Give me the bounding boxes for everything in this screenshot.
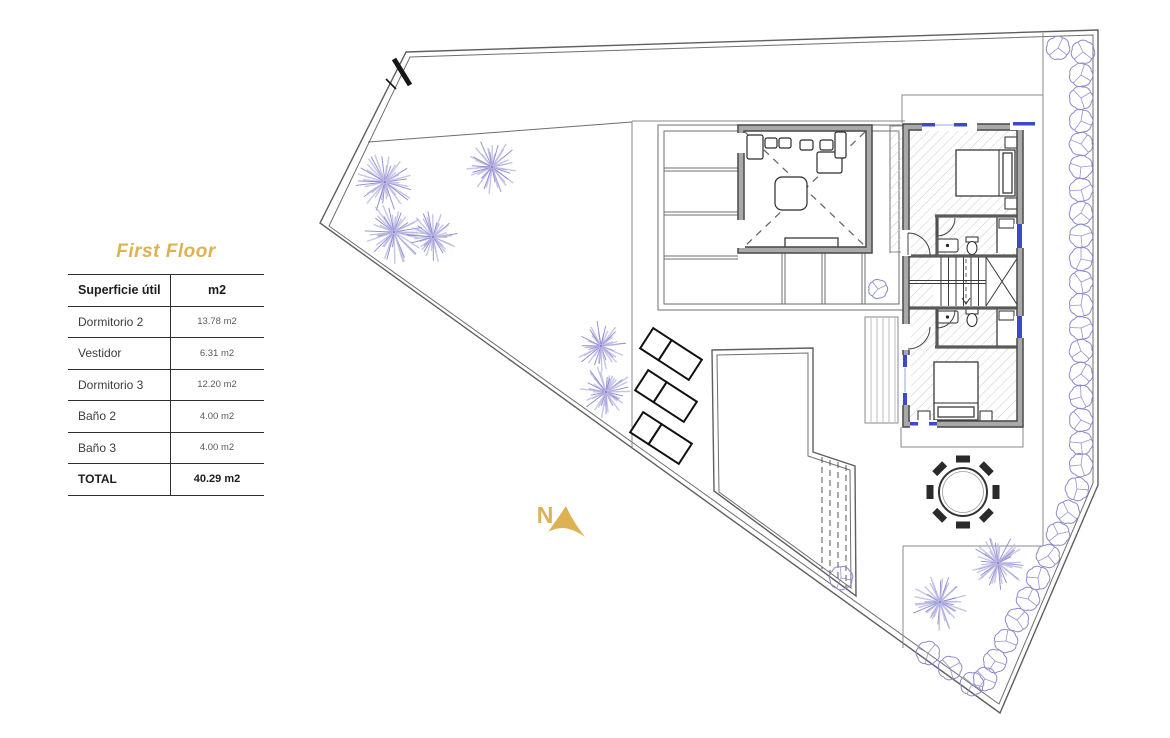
sun-loungers bbox=[630, 328, 702, 464]
bush bbox=[1069, 86, 1092, 109]
bush bbox=[1069, 339, 1092, 362]
bush bbox=[1070, 316, 1093, 339]
entrance-canopy bbox=[902, 95, 1043, 123]
bush bbox=[1056, 500, 1079, 523]
dining-chair bbox=[979, 461, 994, 476]
tree bbox=[466, 142, 515, 194]
bush bbox=[1069, 362, 1092, 385]
tree bbox=[913, 577, 966, 631]
dining-chair bbox=[979, 508, 994, 523]
bush bbox=[1069, 453, 1092, 476]
bush bbox=[1069, 201, 1092, 224]
dining-chair bbox=[956, 522, 970, 529]
bush bbox=[1070, 270, 1093, 293]
tree bbox=[356, 155, 411, 211]
tree bbox=[365, 205, 426, 264]
bush bbox=[1069, 386, 1092, 409]
floor-plan-drawing: N bbox=[0, 0, 1170, 738]
bush bbox=[1069, 155, 1092, 178]
door-gap bbox=[735, 133, 745, 153]
coffee-table bbox=[775, 177, 807, 210]
bush bbox=[983, 649, 1006, 672]
bush bbox=[1016, 587, 1040, 610]
bush bbox=[973, 667, 996, 690]
pool-steps bbox=[822, 457, 846, 587]
bush bbox=[1046, 522, 1069, 545]
bush bbox=[1065, 477, 1088, 500]
bush bbox=[995, 629, 1018, 652]
driveway-edge bbox=[368, 122, 632, 142]
bush bbox=[1069, 224, 1092, 247]
void-living-room bbox=[735, 128, 869, 250]
bush bbox=[1069, 178, 1092, 201]
house-block bbox=[901, 120, 1040, 430]
bush bbox=[1069, 431, 1092, 454]
sofa bbox=[747, 132, 846, 173]
bush bbox=[1046, 36, 1070, 59]
bush bbox=[869, 279, 888, 298]
door-gap bbox=[735, 220, 745, 248]
bush bbox=[1069, 132, 1092, 155]
deck-strip bbox=[865, 317, 898, 423]
bush bbox=[1005, 608, 1028, 631]
bush bbox=[1070, 109, 1093, 132]
north-label: N bbox=[537, 502, 554, 528]
dining-chair bbox=[932, 508, 947, 523]
bush bbox=[1069, 63, 1092, 87]
dining-chair bbox=[927, 485, 934, 499]
bush bbox=[1071, 40, 1095, 63]
bush bbox=[1026, 566, 1049, 589]
bush bbox=[1070, 293, 1093, 316]
dining-chair bbox=[993, 485, 1000, 499]
bush bbox=[1069, 248, 1092, 271]
floor-plan-page: First Floor Superficie útil m2 Dormitori… bbox=[0, 0, 1170, 738]
outdoor-dining-table bbox=[927, 456, 1000, 529]
bush bbox=[1036, 544, 1059, 567]
north-arrow: N bbox=[537, 502, 585, 537]
swimming-pool bbox=[712, 348, 856, 596]
dining-chair bbox=[932, 461, 947, 476]
tree bbox=[579, 321, 626, 372]
bush bbox=[1070, 408, 1093, 432]
dining-chair bbox=[956, 456, 970, 463]
north-arrow-glyph bbox=[548, 506, 585, 537]
